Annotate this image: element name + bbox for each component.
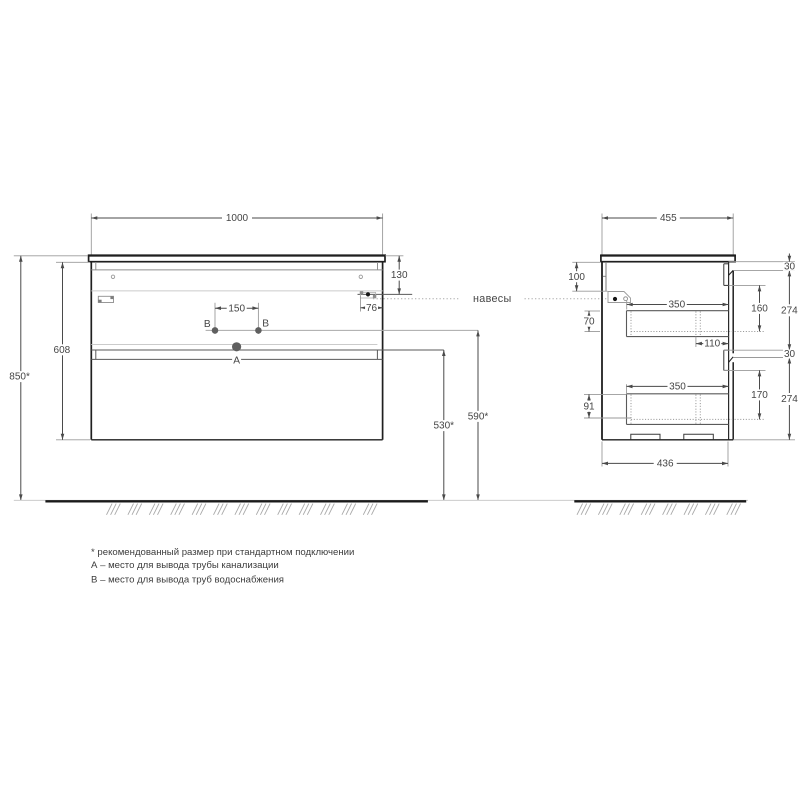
svg-text:навесы: навесы [473, 293, 512, 305]
svg-text:1000: 1000 [226, 213, 249, 224]
svg-text:B: B [204, 319, 211, 330]
svg-text:850*: 850* [9, 372, 30, 383]
svg-text:608: 608 [54, 345, 71, 356]
svg-text:160: 160 [751, 304, 768, 315]
svg-text:70: 70 [583, 316, 595, 327]
svg-text:А – место для вывода трубы кан: А – место для вывода трубы канализации [91, 560, 279, 571]
svg-text:170: 170 [751, 390, 768, 401]
svg-text:350: 350 [669, 382, 686, 393]
svg-text:590*: 590* [468, 412, 489, 423]
svg-text:A: A [233, 356, 240, 367]
svg-text:436: 436 [657, 459, 674, 470]
svg-text:76: 76 [366, 303, 378, 314]
svg-text:350: 350 [668, 300, 685, 311]
svg-text:91: 91 [583, 401, 595, 412]
svg-text:150: 150 [228, 303, 245, 314]
svg-text:274: 274 [781, 305, 798, 316]
svg-text:* рекомендованный размер при с: * рекомендованный размер при стандартном… [91, 547, 354, 558]
svg-text:110: 110 [704, 339, 720, 350]
svg-text:30: 30 [784, 349, 796, 360]
svg-text:B: B [262, 318, 269, 329]
svg-text:530*: 530* [434, 421, 455, 432]
svg-text:274: 274 [781, 394, 798, 405]
svg-text:30: 30 [784, 262, 796, 273]
svg-text:В – место для вывода труб водо: В – место для вывода труб водоснабжения [91, 574, 284, 585]
svg-text:100: 100 [568, 272, 585, 283]
svg-text:455: 455 [660, 213, 677, 224]
svg-text:130: 130 [391, 270, 408, 281]
